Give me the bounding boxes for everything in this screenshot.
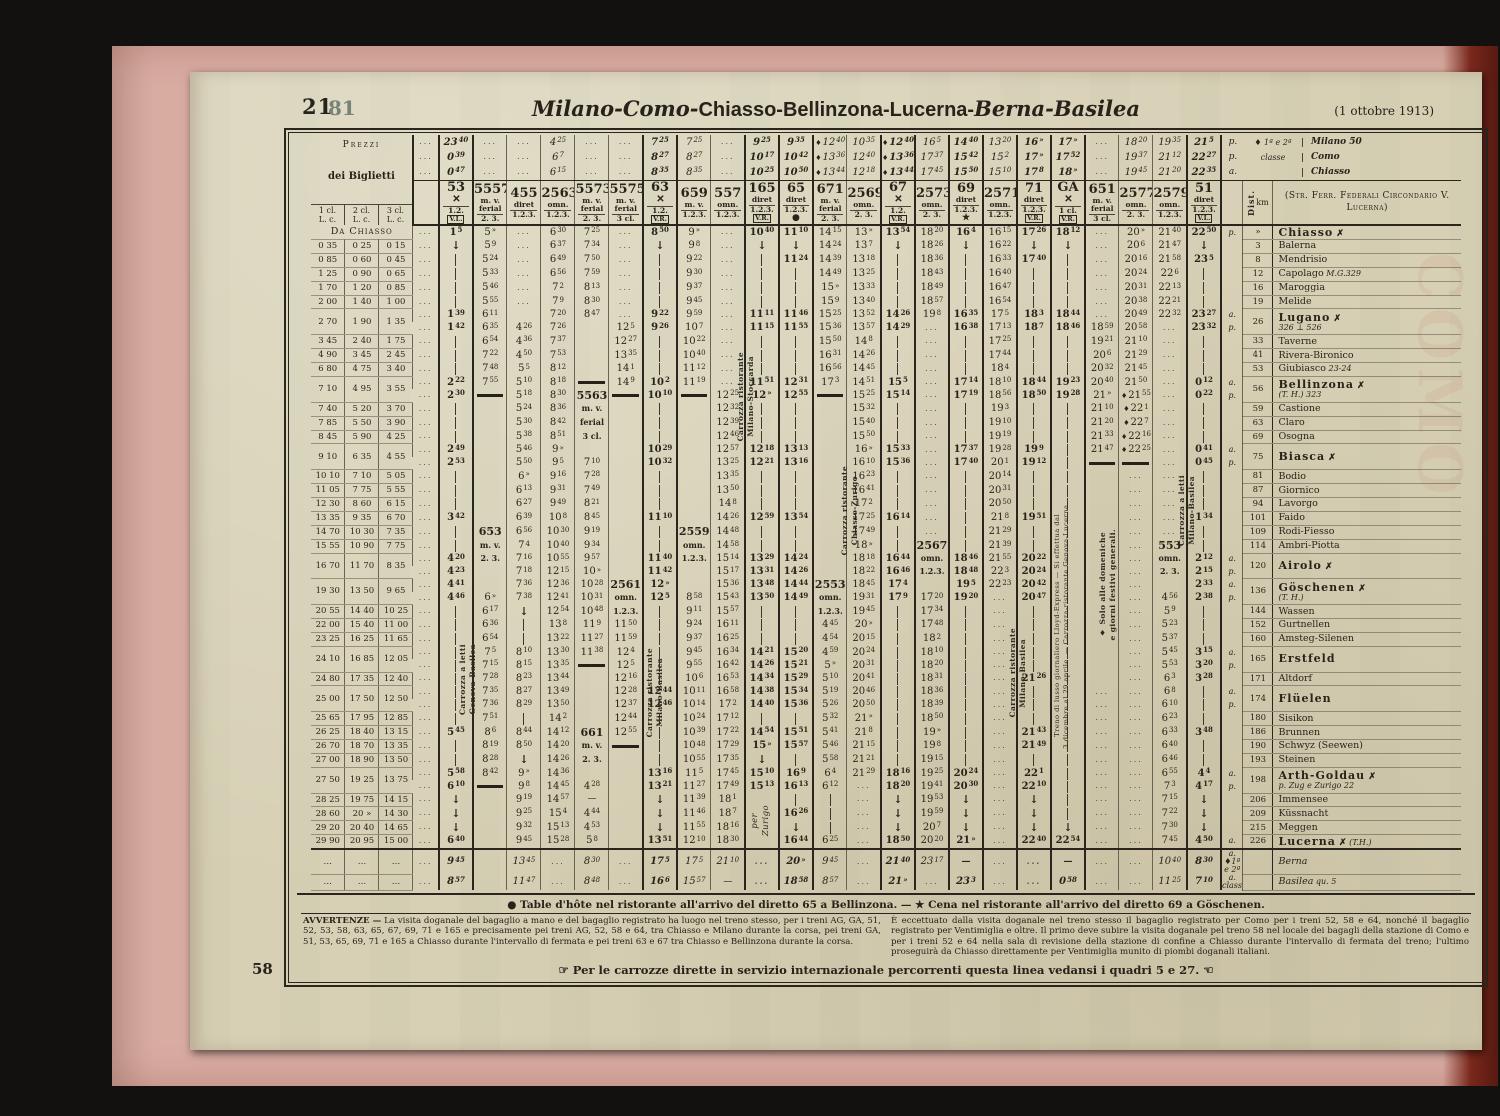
price-cell: … — [345, 849, 379, 874]
time-cell: ... — [983, 835, 1017, 849]
time-cell: 2149 — [1017, 739, 1051, 753]
time-cell: 1350 — [745, 592, 779, 605]
price-cell: 7 10 — [311, 376, 345, 402]
train-badge: V.R. — [1025, 214, 1043, 223]
time-cell: 1350 — [711, 484, 745, 498]
time-cell — [439, 646, 473, 659]
feeder-time-cell: 178 — [1017, 165, 1051, 181]
time-cell: 2129 — [847, 767, 881, 780]
time-cell — [745, 525, 779, 539]
time-cell: 423 — [439, 566, 473, 579]
km-cell: 69 — [1243, 430, 1273, 444]
time-cell — [439, 402, 473, 416]
avvertenze-left-text: La visita doganale del bagaglio a mano e… — [303, 916, 881, 947]
ap-marker: p. — [1221, 322, 1243, 335]
feeder-time-cell: 1017 — [745, 150, 779, 165]
time-cell: 821 — [575, 497, 609, 511]
price-cell: 0 85 — [311, 253, 345, 267]
price-cell: 0 65 — [379, 267, 413, 281]
time-cell: 1420 — [541, 739, 575, 753]
price-cell: 0 25 — [345, 240, 379, 254]
station-cell: Claro — [1273, 416, 1461, 430]
time-cell: 830 — [575, 849, 609, 874]
time-cell: 930 — [677, 267, 711, 281]
time-cell: 1850 — [1017, 389, 1051, 402]
time-cell — [473, 470, 507, 484]
price-cell: 25 65 — [311, 712, 345, 726]
time-cell: 830 — [1187, 849, 1221, 874]
time-cell — [1085, 525, 1119, 539]
feeder-time-cell: 1050 — [779, 165, 813, 181]
time-cell: 235 — [1187, 253, 1221, 267]
price-cell: 12 30 — [311, 497, 345, 511]
price-cell: 23 25 — [311, 632, 345, 646]
station-note: (T. H.) 323 — [1278, 391, 1461, 399]
time-cell: 1735 — [711, 753, 745, 767]
time-cell — [745, 835, 779, 849]
station-cell: Gurtnellen — [1273, 618, 1461, 632]
time-cell: 2047 — [1017, 592, 1051, 605]
time-cell: 1820 — [915, 225, 949, 239]
time-cell: 328 — [1187, 672, 1221, 686]
time-cell — [677, 402, 711, 416]
train-number: GA — [1052, 181, 1084, 195]
time-cell — [575, 712, 609, 726]
time-cell — [881, 253, 915, 267]
price-cell: … — [311, 849, 345, 874]
station-name: Bodio — [1278, 471, 1306, 482]
time-cell: 630 — [541, 225, 575, 239]
time-cell: 445 — [813, 618, 847, 632]
time-cell — [1051, 253, 1085, 267]
time-cell: 1048 — [677, 739, 711, 753]
time-cell: 633 — [1153, 726, 1187, 740]
station-cell: Melide — [1273, 295, 1461, 309]
time-cell — [779, 363, 813, 377]
train-header-cell: 2579omn.1.2.3. — [1153, 181, 1187, 226]
time-cell: 745 — [1153, 835, 1187, 849]
station-cell: Brunnen — [1273, 726, 1461, 740]
time-cell: 656 — [507, 525, 541, 539]
station-cell: Bellinzona ✗(T. H.) 323 — [1273, 376, 1461, 402]
time-cell: 6» — [507, 470, 541, 484]
time-cell: ... — [711, 295, 745, 309]
ap-marker — [1221, 821, 1243, 835]
time-cell: 1426 — [711, 511, 745, 525]
time-cell: 1644 — [881, 553, 915, 566]
time-cell: 1246 — [711, 430, 745, 444]
km-cell: 180 — [1243, 712, 1273, 726]
station-name: Brunnen — [1278, 727, 1320, 738]
time-cell: 1745 — [711, 767, 745, 780]
time-cell: 715 — [1153, 793, 1187, 807]
time-cell: 125 — [609, 659, 643, 672]
time-cell: 1415 — [813, 225, 847, 239]
feeder-time-cell: 1752 — [1051, 150, 1085, 165]
time-cell: 611 — [473, 309, 507, 322]
train-header-cell: 2569omn.2. 3. — [847, 181, 881, 226]
time-cell — [813, 821, 847, 835]
time-cell: ... — [847, 793, 881, 807]
time-cell: 218 — [847, 726, 881, 740]
time-cell — [779, 349, 813, 363]
price-cell: 7 85 — [311, 416, 345, 430]
time-cell — [949, 470, 983, 484]
time-cell: 1457 — [541, 793, 575, 807]
time-cell — [609, 470, 643, 484]
time-cell: 546 — [507, 444, 541, 457]
station-note: 326 ⊥ 526 — [1278, 324, 1461, 332]
time-cell — [609, 807, 643, 821]
time-cell: 1330 — [541, 646, 575, 659]
time-cell: 851 — [541, 430, 575, 444]
price-cell: 19 25 — [345, 767, 379, 793]
time-cell: 74 — [507, 539, 541, 553]
time-cell: ... — [413, 739, 439, 753]
time-cell: ... — [507, 240, 541, 254]
station-name: Claro — [1278, 417, 1304, 428]
train-classes: 3 cl. — [1089, 214, 1116, 223]
time-cell: 1510 — [745, 767, 779, 780]
time-cell: ... — [915, 349, 949, 363]
time-cell: 6» — [473, 592, 507, 605]
time-cell: 15 — [439, 225, 473, 239]
time-cell — [881, 539, 915, 553]
train-type: ferial — [1086, 205, 1119, 213]
time-cell: 9» — [507, 767, 541, 780]
time-cell — [745, 821, 779, 835]
time-cell: 545 — [1153, 646, 1187, 659]
time-cell: ... — [915, 470, 949, 484]
time-cell: 1720 — [915, 592, 949, 605]
time-cell: 1444 — [779, 579, 813, 592]
feeder-time-cell: 827 — [677, 150, 711, 165]
station-cell: Ambri-Piotta — [1273, 539, 1461, 553]
train-header-cell: 557omn.1.2.3. — [711, 181, 745, 226]
station-row: 19 3013 509 65...44173612361028256112»15… — [311, 579, 1461, 592]
station-row: 11 057 755 55...61393174913501641...2031… — [311, 484, 1461, 498]
time-cell — [1051, 726, 1085, 740]
time-cell: 2133 — [1085, 430, 1119, 444]
time-cell: 819 — [473, 739, 507, 753]
time-cell: ... — [1119, 849, 1153, 874]
time-cell: 98 — [677, 240, 711, 254]
table-frame: Prezzidei Biglietti1 cl.L. c.2 cl.L. c.3… — [284, 128, 1488, 987]
time-cell — [609, 767, 643, 780]
time-cell — [779, 484, 813, 498]
validity-date: (1 ottobre 1913) — [1334, 104, 1434, 118]
time-cell: 1740 — [1017, 253, 1051, 267]
time-cell: 510 — [813, 672, 847, 686]
time-cell — [609, 739, 643, 753]
time-cell: ↓ — [1017, 821, 1051, 835]
time-cell — [881, 753, 915, 767]
time-cell: 1533 — [881, 444, 915, 457]
time-cell: 119 — [575, 618, 609, 632]
time-cell: 726 — [541, 322, 575, 335]
ap-marker — [1221, 753, 1243, 767]
ap-marker: a. classe — [1221, 874, 1243, 890]
time-cell: ... — [1017, 874, 1051, 890]
train-number: 651 — [1086, 183, 1119, 197]
time-cell: ... — [413, 672, 439, 686]
time-cell: 550 — [507, 457, 541, 470]
station-name: Capolago — [1278, 268, 1323, 279]
price-cell: 8 35 — [379, 553, 413, 579]
time-cell: ... — [413, 389, 439, 402]
km-cell: 136 — [1243, 579, 1273, 605]
time-cell: 518 — [507, 389, 541, 402]
time-cell: 2213 — [1153, 281, 1187, 295]
train-header-cell: 165diret1.2.3.V.R. — [745, 181, 779, 226]
time-cell: ... — [1153, 363, 1187, 377]
ap-marker: a. — [1221, 376, 1243, 389]
time-cell: 924 — [677, 618, 711, 632]
time-cell: ... — [1119, 780, 1153, 793]
time-cell: ... — [413, 659, 439, 672]
time-cell: 730 — [1153, 821, 1187, 835]
time-cell: 1550 — [847, 430, 881, 444]
time-cell: 444 — [575, 807, 609, 821]
price-cell: 9 35 — [345, 511, 379, 525]
time-cell: 751 — [473, 712, 507, 726]
price-cell: 0 35 — [311, 240, 345, 254]
time-cell: 530 — [507, 416, 541, 430]
feeder-time-cell: ... — [413, 135, 439, 150]
time-cell — [1187, 632, 1221, 646]
restaurant-icon: ✗ — [1355, 584, 1366, 594]
price-cell: 7 10 — [345, 470, 379, 484]
feeder-time-cell: 725 — [643, 135, 677, 150]
time-cell: 2143 — [1017, 726, 1051, 740]
price-cell: 4 25 — [379, 430, 413, 444]
time-cell: ... — [1119, 686, 1153, 699]
time-cell: 656 — [541, 267, 575, 281]
time-cell: ... — [413, 592, 439, 605]
time-cell: ↓ — [507, 753, 541, 767]
time-cell: 612 — [813, 780, 847, 793]
ap-marker — [1221, 267, 1243, 281]
time-cell — [575, 335, 609, 349]
time-cell — [1187, 539, 1221, 553]
feeder-marker: p. — [1222, 153, 1244, 162]
time-cell: 1225 — [711, 389, 745, 402]
time-cell: 1040 — [677, 349, 711, 363]
time-cell: 932 — [507, 821, 541, 835]
time-cell — [1187, 484, 1221, 498]
station-name: Chiasso — [1278, 226, 1333, 239]
km-cell: 120 — [1243, 553, 1273, 579]
time-cell — [643, 605, 677, 619]
time-cell — [1051, 511, 1085, 525]
time-cell: 1024 — [677, 712, 711, 726]
station-name: Erstfeld — [1278, 652, 1335, 665]
time-cell: 931 — [541, 484, 575, 498]
time-cell: ... — [413, 553, 439, 566]
time-cell — [1017, 416, 1051, 430]
time-cell — [643, 525, 677, 539]
time-cell: ... — [1153, 511, 1187, 525]
time-cell: 2567 — [915, 539, 949, 553]
time-cell — [1017, 402, 1051, 416]
time-cell — [779, 281, 813, 295]
time-cell: 654 — [473, 632, 507, 646]
train-header-row: 53✕1.2.V.L.5557m. v.ferial2. 3.455diret1… — [311, 181, 1461, 226]
time-cell — [1017, 497, 1051, 511]
time-cell: 139 — [439, 309, 473, 322]
time-cell: 198 — [915, 739, 949, 753]
time-cell: ... — [1085, 267, 1119, 281]
km-cell: 174 — [1243, 686, 1273, 712]
train-classes: 1.2.3. — [953, 205, 979, 214]
time-cell: 041 — [1187, 444, 1221, 457]
time-cell: 195 — [949, 579, 983, 592]
time-cell — [1017, 525, 1051, 539]
time-cell — [1017, 632, 1051, 646]
station-row: 6 804 753 40...748558121411112...1656144… — [311, 363, 1461, 377]
time-cell: 1218 — [745, 444, 779, 457]
station-cell: Göschenen ✗(T. H.) — [1273, 579, 1461, 605]
time-cell: ... — [983, 686, 1017, 699]
time-cell: ... — [847, 780, 881, 793]
time-cell: ... — [1153, 470, 1187, 484]
time-cell: 230 — [439, 389, 473, 402]
time-cell: 1255 — [609, 726, 643, 740]
time-cell — [745, 430, 779, 444]
feeder-destination-row: p.classeComo — [1222, 150, 1461, 165]
time-cell: ... — [413, 511, 439, 525]
time-cell: ... — [413, 281, 439, 295]
price-cell: 11 65 — [379, 632, 413, 646]
train-badge: V.R. — [753, 214, 771, 223]
time-cell — [881, 605, 915, 619]
time-cell — [949, 739, 983, 753]
station-row: 26 7018 7013 35...8198501420m. v.1048172… — [311, 739, 1461, 753]
time-cell — [473, 430, 507, 444]
time-cell: ... — [745, 849, 779, 874]
time-cell: ... — [711, 253, 745, 267]
time-cell: m. v. — [473, 539, 507, 553]
price-cell: 9 10 — [311, 444, 345, 470]
feeder-time-cell: 047 — [439, 165, 473, 181]
time-cell — [949, 267, 983, 281]
time-cell: 1725 — [983, 335, 1017, 349]
time-cell: 1241 — [541, 592, 575, 605]
time-cell: ... — [1153, 525, 1187, 539]
time-cell: 1941 — [915, 780, 949, 793]
time-cell: ↓ — [1017, 807, 1051, 821]
time-cell — [949, 484, 983, 498]
time-cell: 649 — [541, 253, 575, 267]
station-row: ………...8571147...848...1661557—...1858857… — [311, 874, 1461, 890]
time-cell: ... — [915, 484, 949, 498]
time-cell: 1439 — [813, 253, 847, 267]
time-cell — [1085, 566, 1119, 579]
time-cell — [439, 712, 473, 726]
time-cell — [915, 579, 949, 592]
time-cell: ... — [1085, 821, 1119, 835]
time-cell: ... — [507, 225, 541, 239]
time-cell — [1051, 646, 1085, 659]
price-cell: 13 50 — [345, 579, 379, 605]
time-cell: 1959 — [915, 807, 949, 821]
train-number: 67 — [882, 181, 914, 195]
station-row: 3 452 401 75...65443673712271022...15501… — [311, 335, 1461, 349]
feeder-time-cell: 1440 — [949, 135, 983, 150]
price-cell: 6 15 — [379, 497, 413, 511]
time-cell — [643, 726, 677, 740]
time-cell — [439, 525, 473, 539]
time-cell: 1426 — [881, 309, 915, 322]
time-cell: 1557 — [711, 605, 745, 619]
time-cell — [881, 349, 915, 363]
station-name: Maroggia — [1278, 282, 1325, 293]
time-cell — [745, 712, 779, 726]
time-cell: 845 — [575, 511, 609, 525]
time-cell — [473, 579, 507, 592]
time-cell: 955 — [677, 659, 711, 672]
time-cell — [813, 484, 847, 498]
time-cell — [507, 712, 541, 726]
time-cell — [1119, 457, 1153, 470]
train-header-cell: 53✕1.2.V.L. — [439, 181, 473, 226]
time-cell: 949 — [541, 497, 575, 511]
time-cell: 1725 — [847, 511, 881, 525]
time-cell: 1244 — [643, 686, 677, 699]
price-cell: 24 10 — [311, 646, 345, 672]
time-cell: ... — [1153, 444, 1187, 457]
price-cell: 1 75 — [379, 335, 413, 349]
time-cell — [949, 539, 983, 553]
time-cell — [609, 753, 643, 767]
km-cell: 171 — [1243, 672, 1273, 686]
restaurant-icon: ✗ — [1322, 562, 1333, 572]
time-cell — [643, 539, 677, 553]
feeder-time-cell: 152 — [983, 150, 1017, 165]
price-cell: 2 00 — [311, 295, 345, 309]
station-name: Göschenen — [1278, 581, 1355, 594]
price-cell: 14 65 — [379, 821, 413, 835]
time-cell — [439, 281, 473, 295]
time-cell — [609, 566, 643, 579]
time-cell — [677, 457, 711, 470]
time-cell — [745, 295, 779, 309]
time-cell — [439, 632, 473, 646]
station-name: Sisikon — [1278, 713, 1313, 724]
feeder-time-cell: 1042 — [779, 150, 813, 165]
time-cell: 2024 — [949, 767, 983, 780]
price-cell: 14 30 — [379, 807, 413, 821]
time-cell: 1426 — [779, 566, 813, 579]
time-cell — [439, 753, 473, 767]
time-cell: 5» — [813, 659, 847, 672]
time-cell: 1850 — [881, 835, 915, 849]
time-cell — [609, 484, 643, 498]
train-header-cell: 659m. v.1.2.3. — [677, 181, 711, 226]
time-cell: ... — [1119, 672, 1153, 686]
time-cell: ... — [1153, 430, 1187, 444]
time-cell: 1150 — [609, 618, 643, 632]
ap-marker — [1221, 240, 1243, 254]
time-cell: 124 — [609, 646, 643, 659]
time-cell: 1818 — [847, 553, 881, 566]
time-cell — [745, 605, 779, 619]
time-cell: 2158 — [1153, 253, 1187, 267]
time-cell: 102 — [643, 376, 677, 389]
time-cell — [643, 349, 677, 363]
time-cell — [1187, 618, 1221, 632]
price-cell: 1 25 — [311, 267, 345, 281]
